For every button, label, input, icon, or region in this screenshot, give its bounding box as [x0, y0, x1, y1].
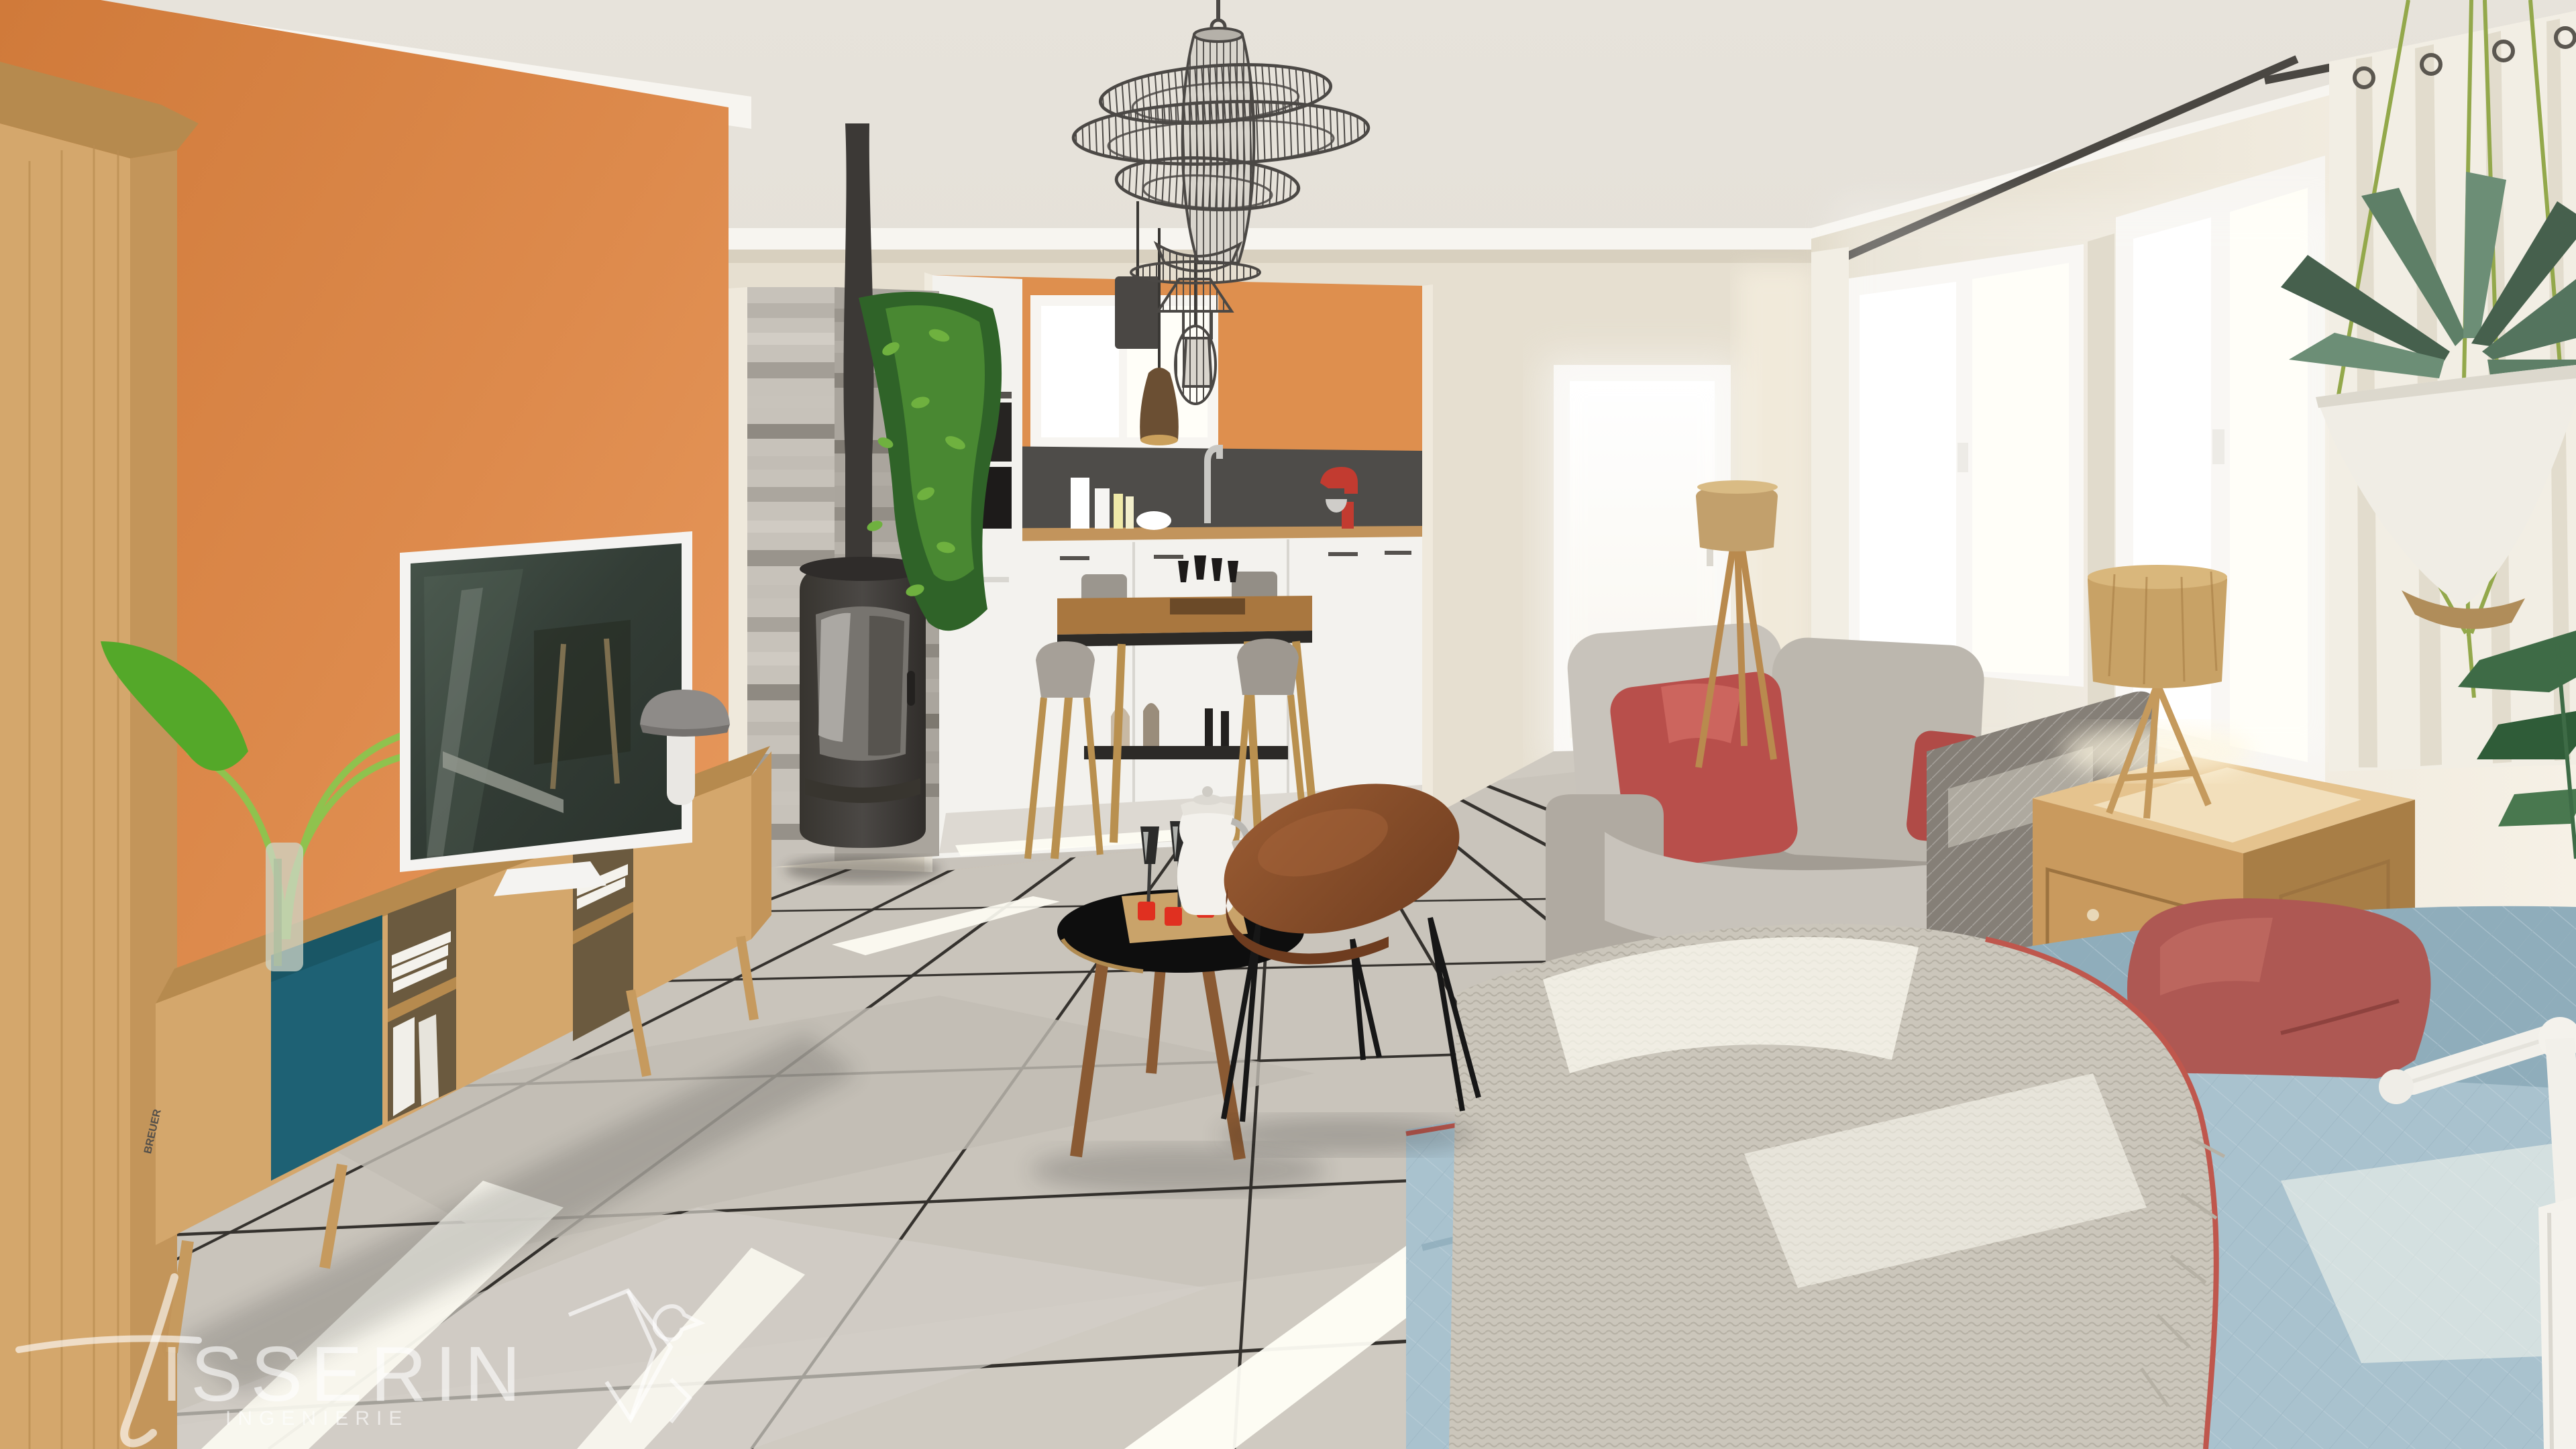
doorway-jamb-right	[1422, 284, 1433, 821]
cylinder-pendant	[1115, 276, 1161, 349]
crown-molding-back	[729, 228, 1815, 252]
watermark-brand: ISSERIN	[161, 1330, 529, 1417]
crown-shadow	[729, 250, 1811, 263]
stove-handle	[907, 671, 915, 706]
console-side	[751, 751, 771, 939]
drawer-knob	[2087, 909, 2099, 921]
watermark-subtitle: INGENIERIE	[225, 1407, 409, 1430]
knit-throw	[1449, 924, 2224, 1449]
floor-lamp-shade	[1696, 486, 1778, 551]
oak-wardrobe	[0, 62, 199, 1449]
console-cubby-b	[573, 821, 633, 1041]
glass-vase	[266, 843, 303, 971]
interior-render: BREUER	[0, 0, 2576, 1449]
stove-flue	[843, 123, 873, 570]
